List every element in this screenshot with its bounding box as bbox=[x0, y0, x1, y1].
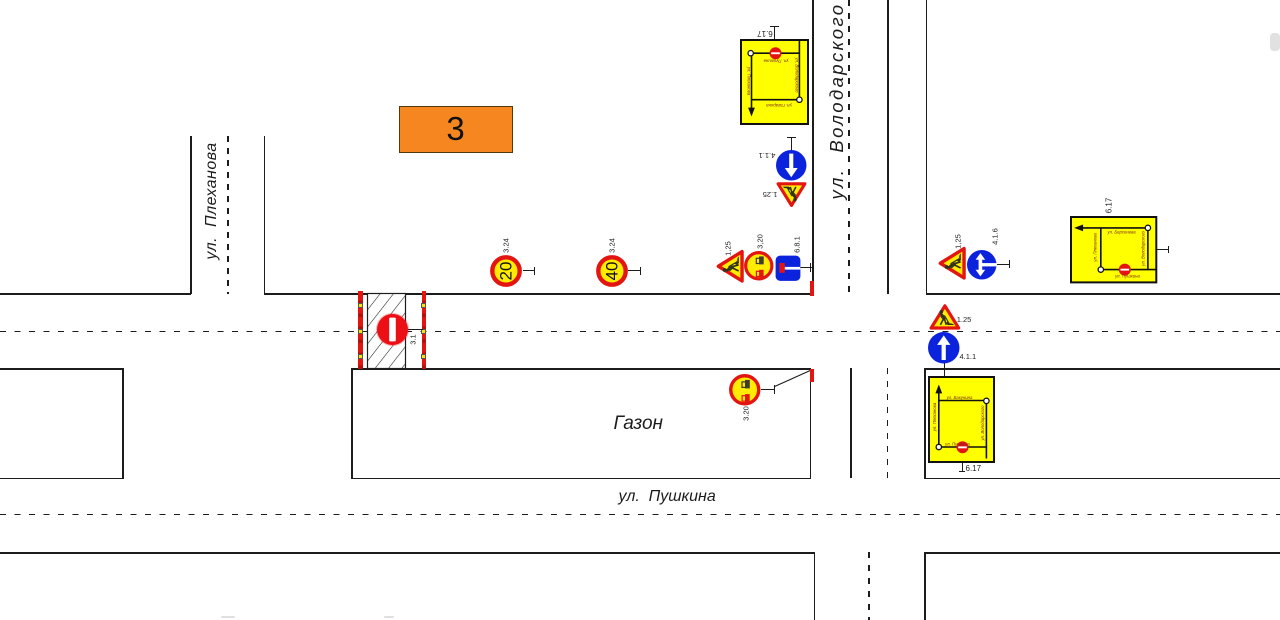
svg-text:ул. Плеханова: ул. Плеханова bbox=[1092, 233, 1097, 263]
svg-text:ул. Гагарина: ул. Гагарина bbox=[766, 103, 793, 108]
svg-text:ул. Плеханова: ул. Плеханова bbox=[932, 402, 937, 432]
svg-text:ул. Пушкина: ул. Пушкина bbox=[1114, 274, 1140, 279]
svg-text:20: 20 bbox=[497, 262, 516, 281]
svg-text:ул. Плеханова: ул. Плеханова bbox=[747, 66, 752, 96]
svg-text:ул. Володарского: ул. Володарского bbox=[1140, 231, 1145, 268]
svg-text:ул. Пушкина: ул. Пушкина bbox=[944, 441, 971, 446]
svg-text:ул. Володарского: ул. Володарского bbox=[980, 405, 985, 442]
svg-text:ул. Пушкина: ул. Пушкина bbox=[763, 58, 790, 63]
svg-text:ул. Володарского: ул. Володарского bbox=[795, 56, 800, 93]
svg-text:ул. Бакунина: ул. Бакунина bbox=[946, 395, 973, 400]
svg-text:ул. Берсенева: ул. Берсенева bbox=[1106, 230, 1136, 235]
svg-text:40: 40 bbox=[603, 262, 622, 281]
